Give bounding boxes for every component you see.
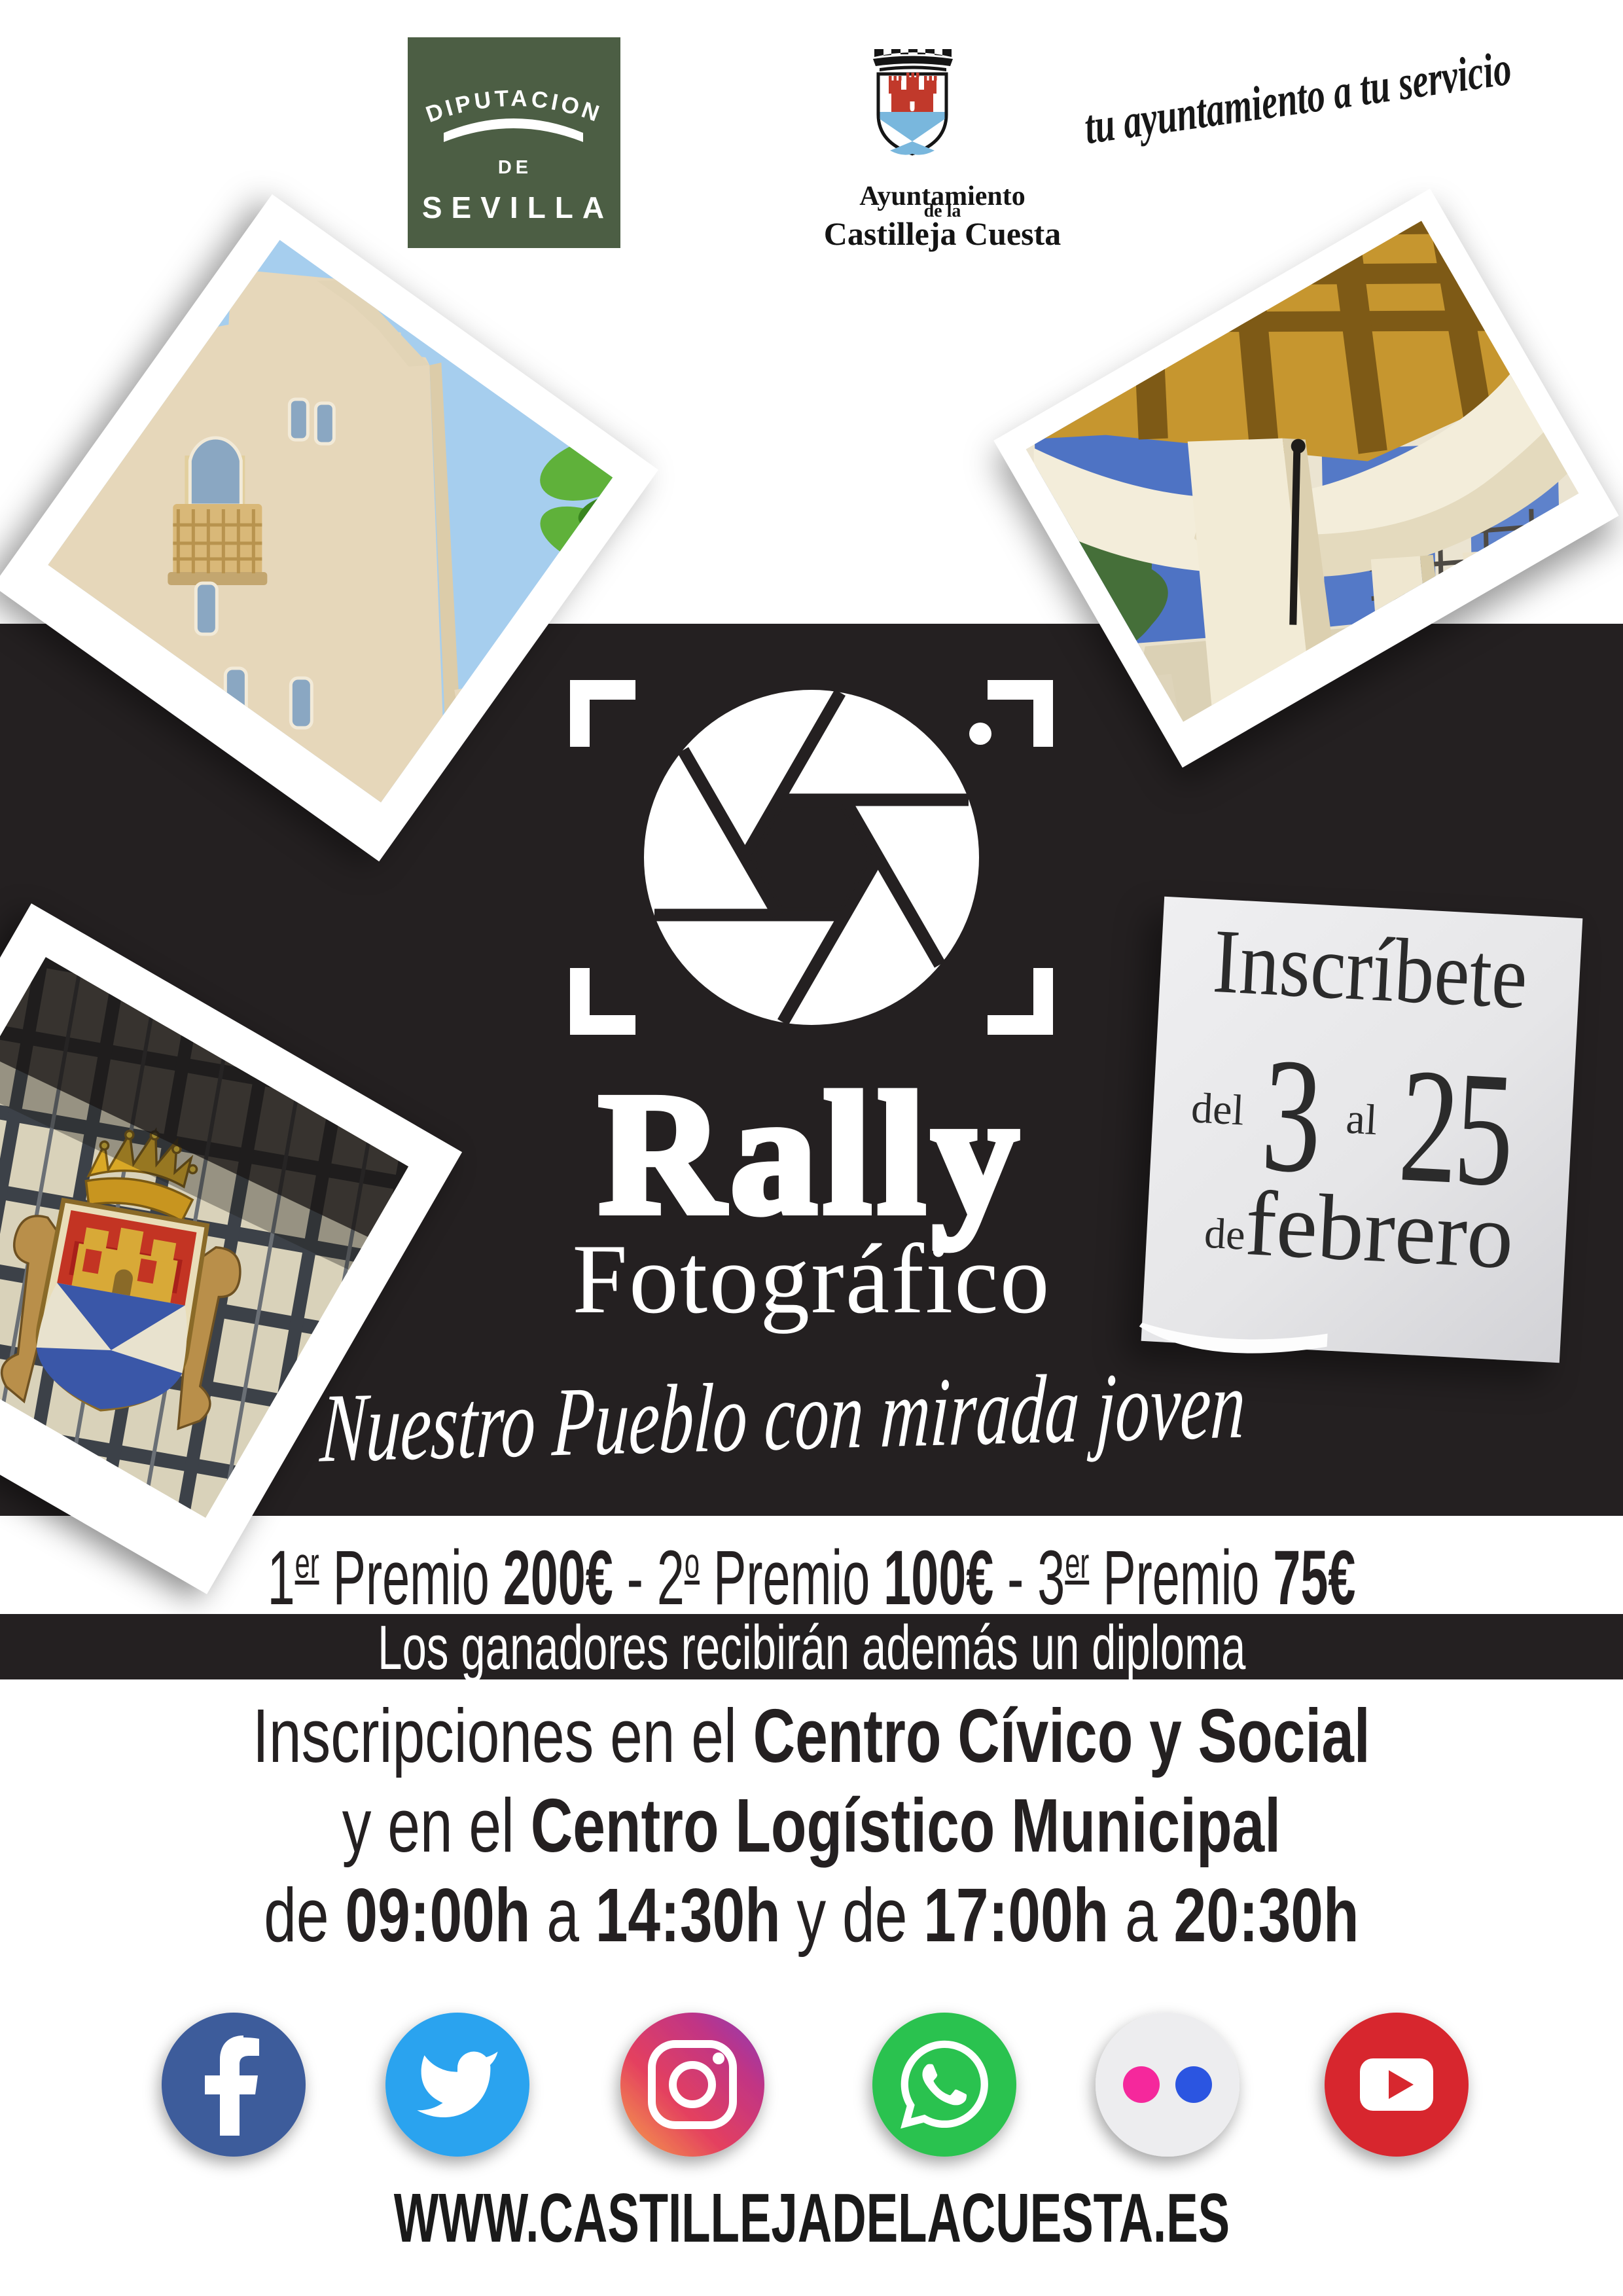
svg-text:DE: DE: [498, 157, 532, 178]
svg-text:SEVILLA: SEVILLA: [422, 190, 613, 224]
svg-text:Castilleja Cuesta: Castilleja Cuesta: [824, 215, 1061, 252]
